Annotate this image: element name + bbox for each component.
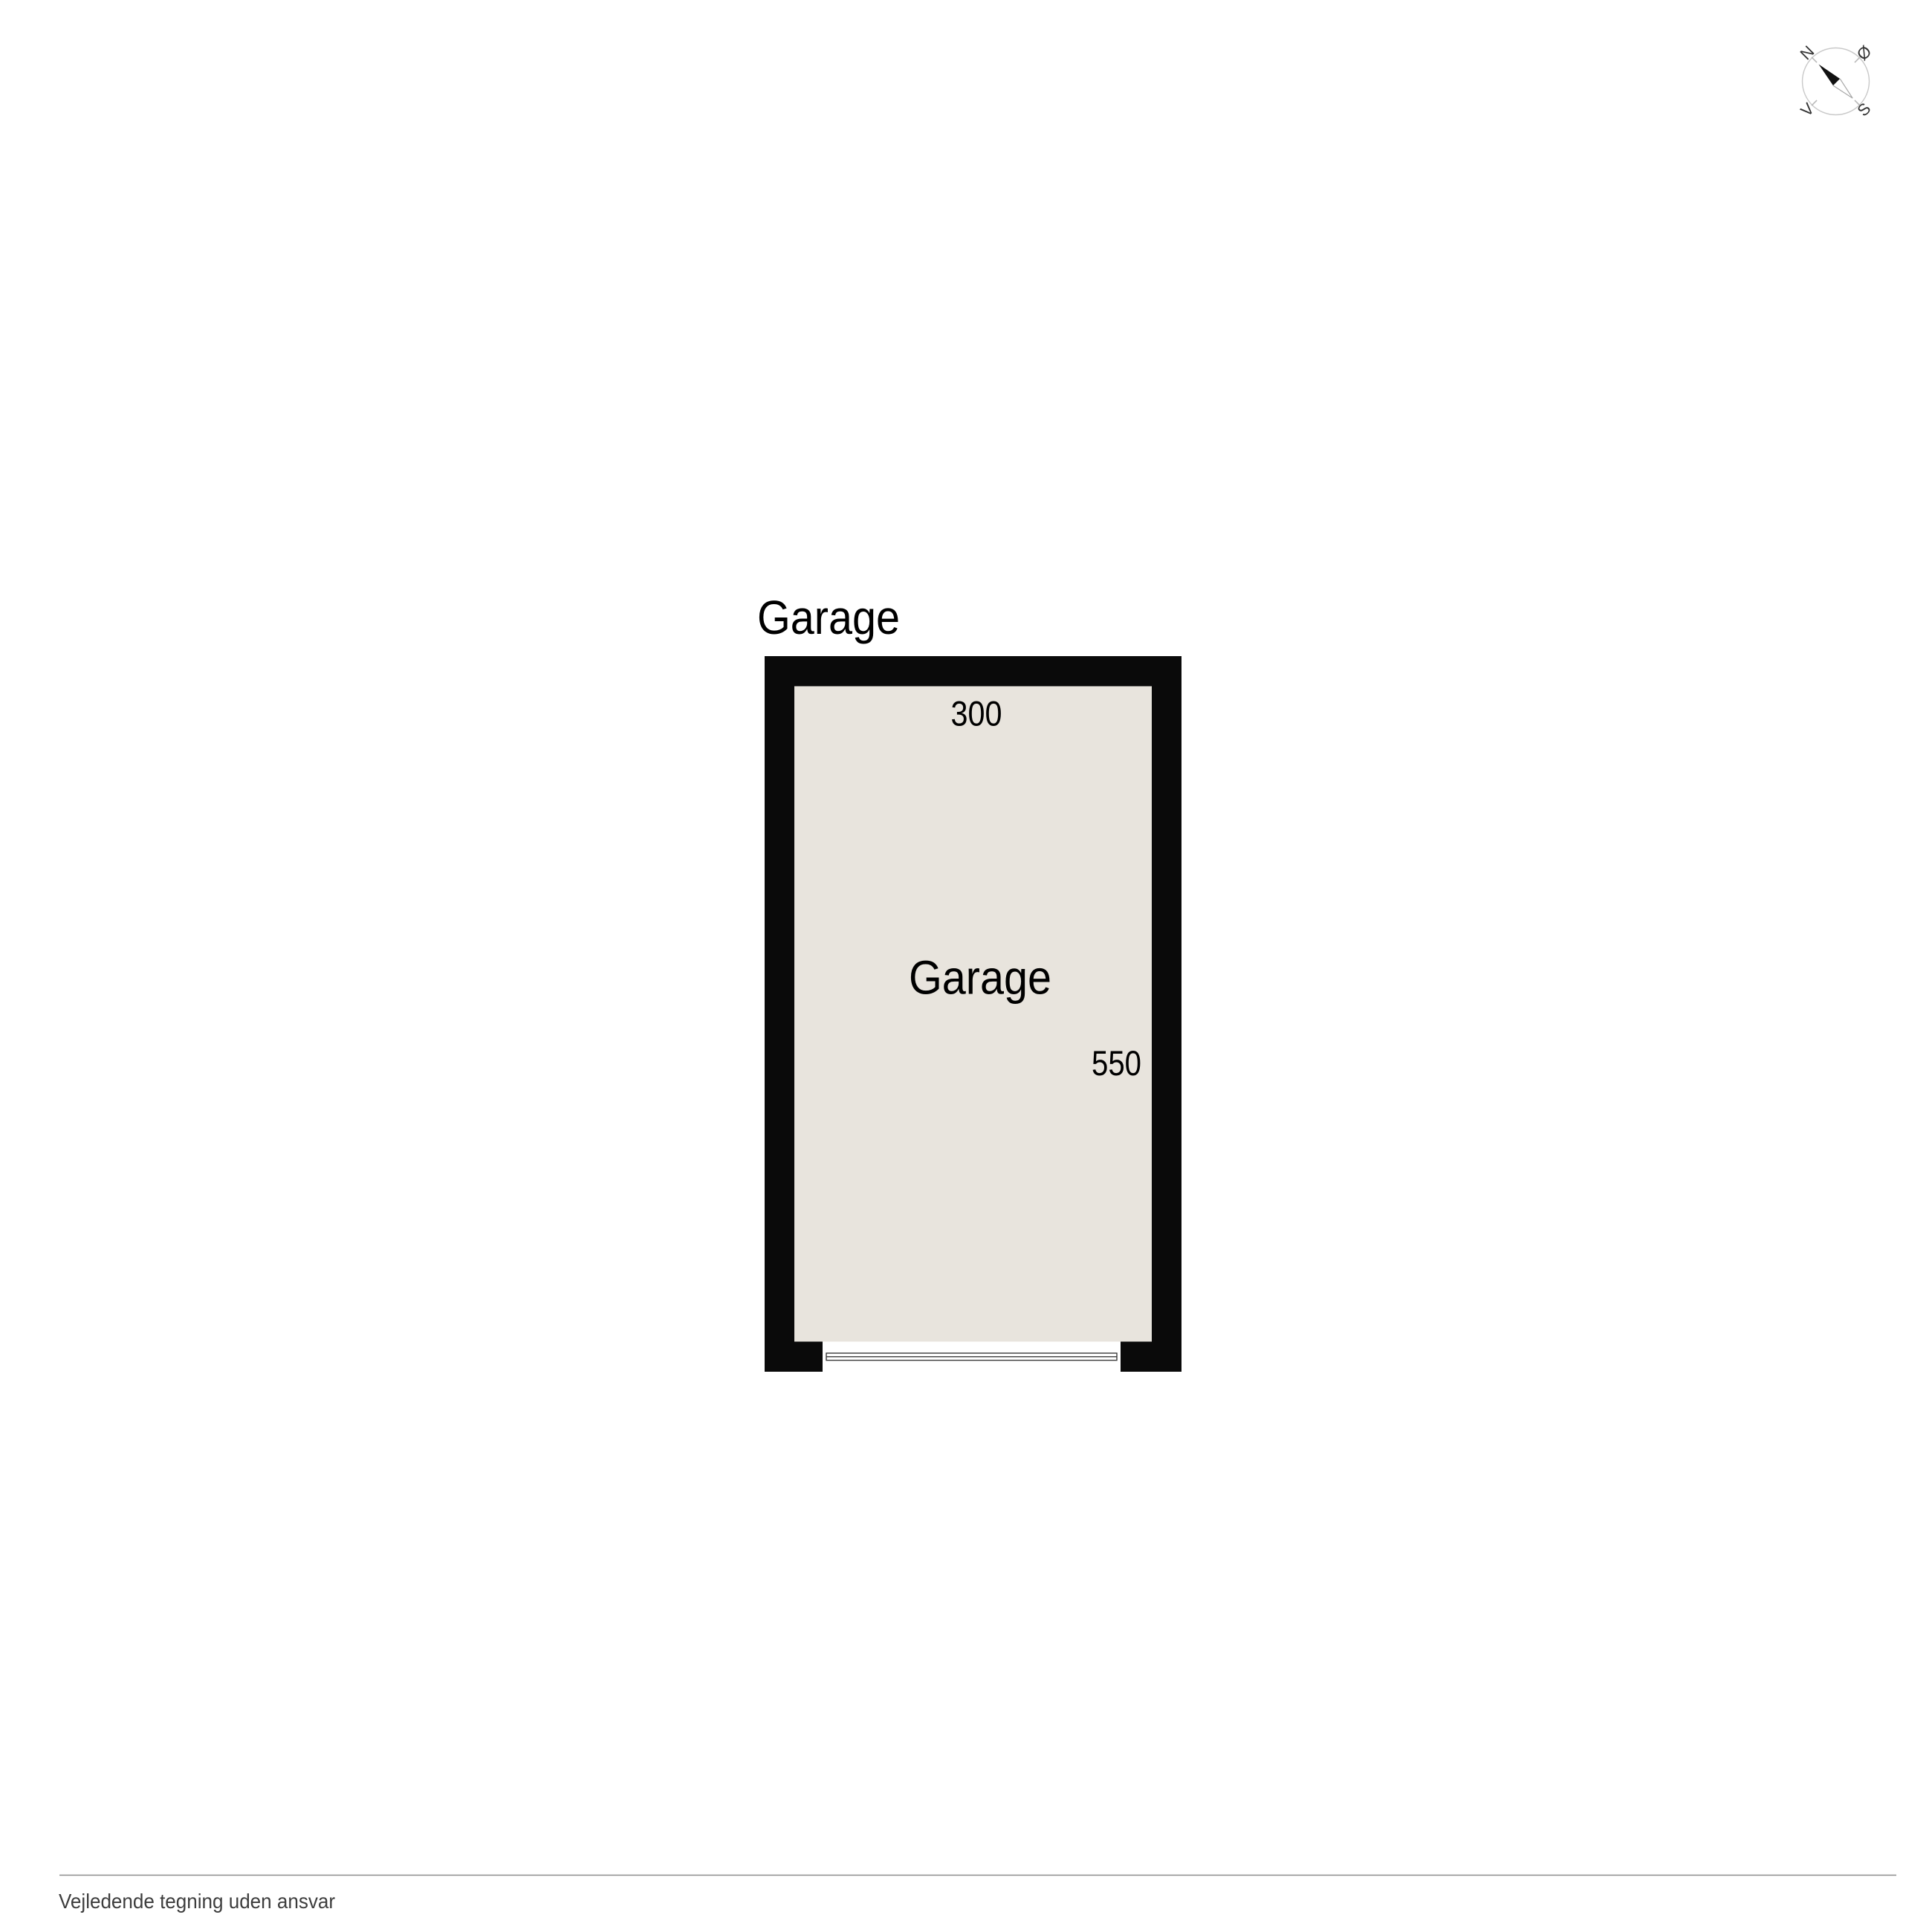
svg-text:Vejledende tegning uden ansvar: Vejledende tegning uden ansvar: [59, 1890, 335, 1913]
svg-text:550: 550: [1092, 1043, 1141, 1083]
svg-text:300: 300: [951, 694, 1002, 733]
svg-text:Garage: Garage: [909, 951, 1051, 1005]
svg-text:Garage: Garage: [757, 591, 900, 644]
